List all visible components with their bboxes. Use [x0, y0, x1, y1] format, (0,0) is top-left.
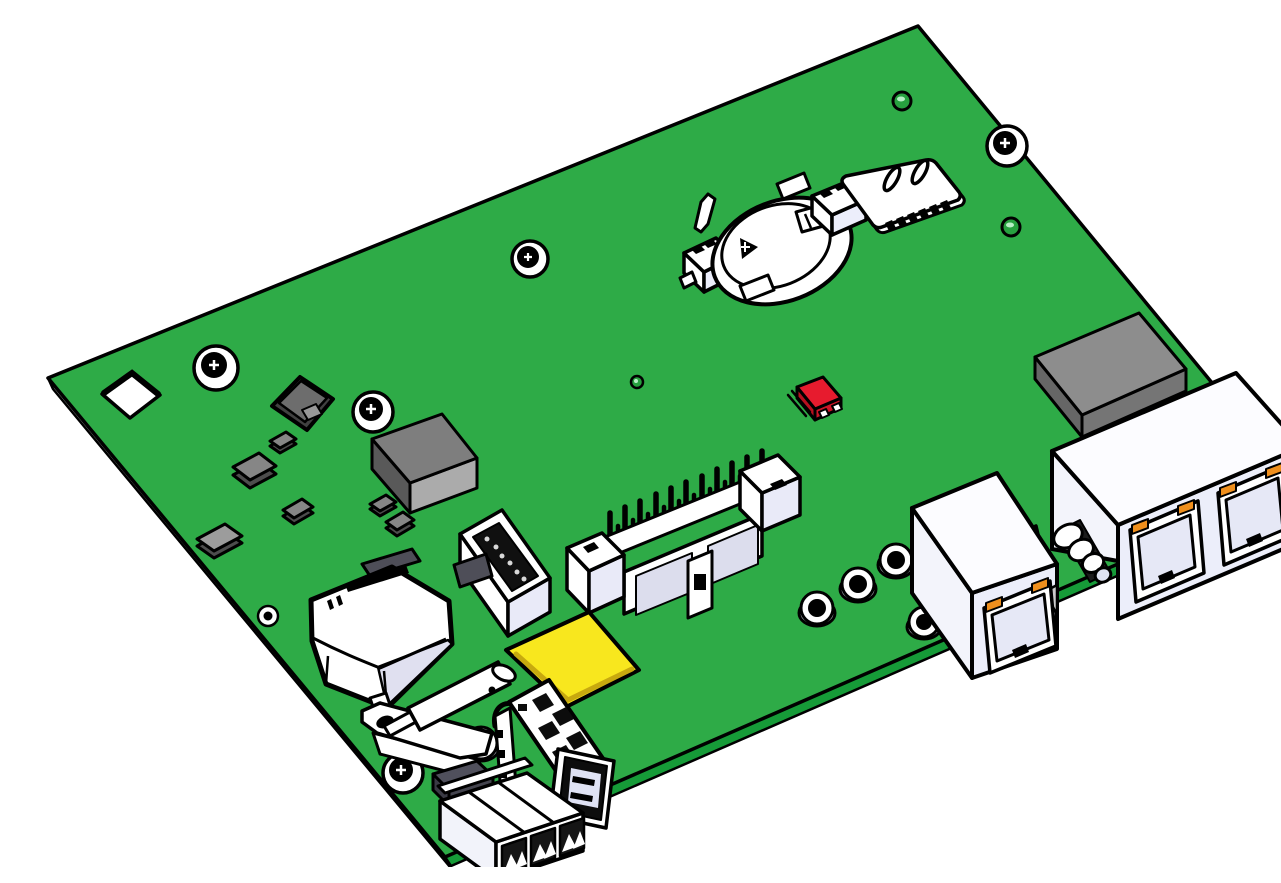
pcb-render [40, 16, 1281, 867]
